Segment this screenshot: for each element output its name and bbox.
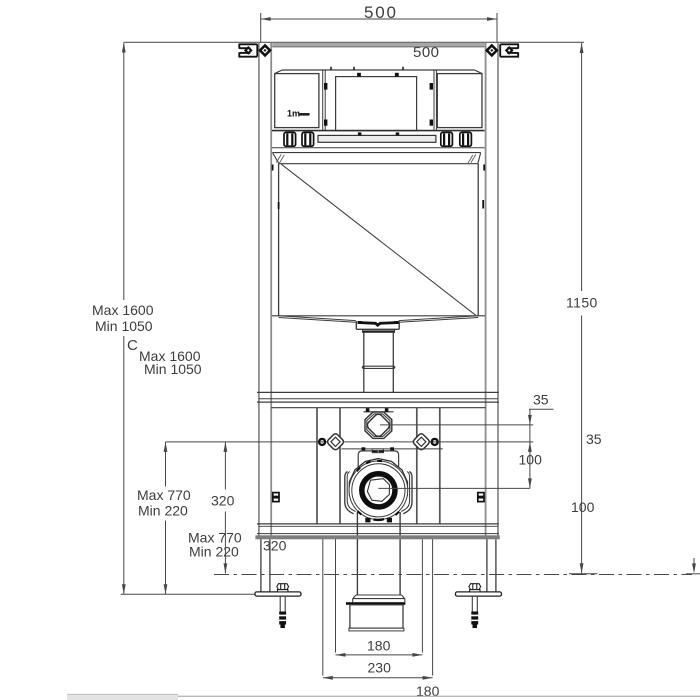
svg-text:Min 1050: Min 1050 (95, 318, 153, 334)
svg-text:180: 180 (367, 638, 391, 654)
svg-text:35: 35 (533, 392, 549, 408)
svg-text:Max 1600: Max 1600 (92, 302, 154, 318)
svg-text:320: 320 (211, 493, 235, 509)
svg-text:320: 320 (263, 538, 287, 554)
svg-text:1150: 1150 (566, 295, 598, 311)
svg-text:Max 770: Max 770 (137, 487, 191, 503)
svg-text:35: 35 (586, 431, 602, 447)
svg-text:Min 220: Min 220 (138, 503, 188, 519)
svg-text:1m: 1m (287, 109, 300, 119)
svg-text:C: C (127, 337, 138, 354)
svg-text:100: 100 (571, 499, 595, 515)
svg-text:Min 220: Min 220 (189, 544, 239, 560)
svg-text:100: 100 (519, 452, 543, 468)
svg-text:230: 230 (368, 660, 392, 676)
svg-text:Min 1050: Min 1050 (144, 361, 202, 377)
